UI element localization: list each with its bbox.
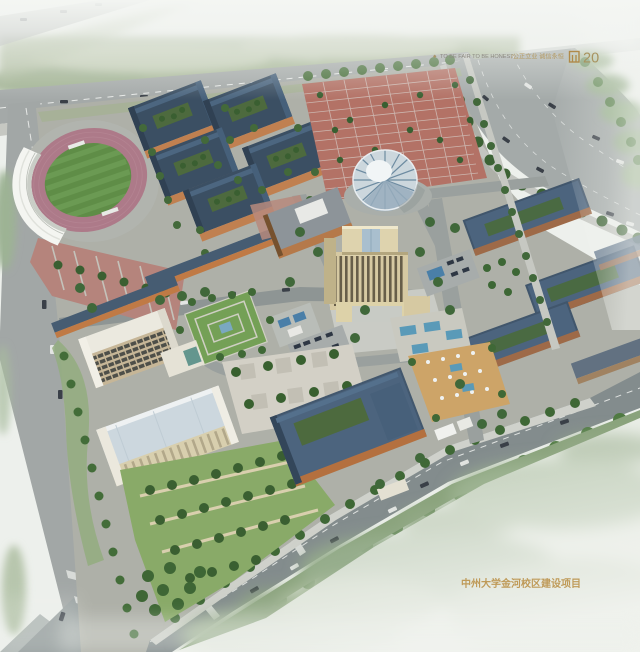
svg-text:中州大学金河校区建设项目: 中州大学金河校区建设项目	[461, 577, 581, 590]
svg-text:20: 20	[583, 51, 599, 67]
svg-text:TO BE FAIR TO BE HONEST: TO BE FAIR TO BE HONEST	[440, 54, 514, 60]
svg-text:◆: ◆	[433, 54, 437, 59]
svg-text:/公正立业 诚信永恒: /公正立业 诚信永恒	[511, 53, 564, 61]
